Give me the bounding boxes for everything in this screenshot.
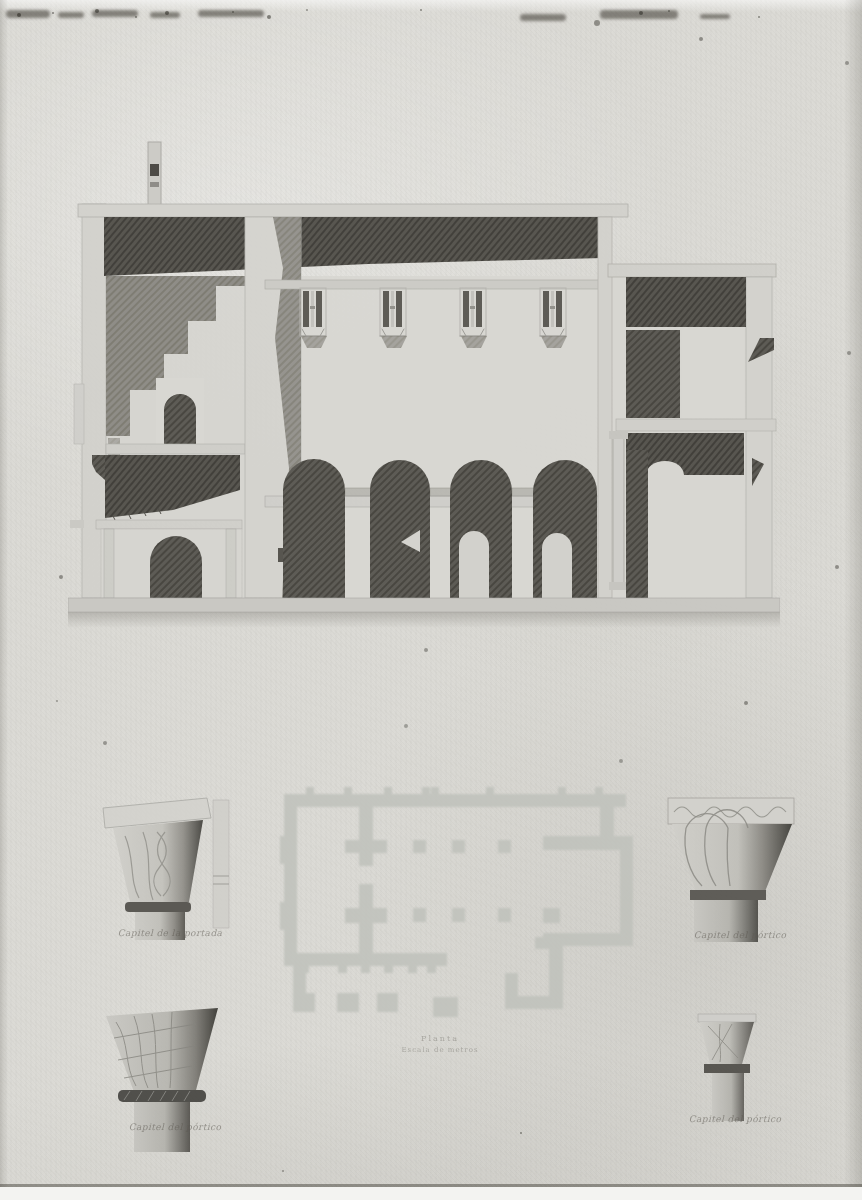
longitudinal-section-drawing [68, 138, 780, 630]
capital-figure-top-left [95, 788, 235, 940]
foxing-specks [0, 0, 2, 2]
top-smudge [198, 10, 264, 17]
engraving-plate: Capitel de la portada Capitel del pórtic… [0, 0, 862, 1200]
caption-capital-top-left: Capitel de la portada [95, 928, 245, 938]
top-smudge [6, 10, 50, 18]
top-smudge [520, 14, 566, 21]
top-smudge [58, 12, 84, 18]
plan-walls [280, 787, 633, 1017]
bottom-margin [0, 1187, 862, 1200]
plan-scale: Escala de metros [322, 1046, 558, 1054]
caption-capital-top-right: Capitel del pórtico [660, 930, 820, 940]
caption-capital-bottom-left: Capitel del pórtico [95, 1122, 255, 1132]
top-smudge [700, 14, 730, 19]
plan-caption: Planta Escala de metros [322, 1034, 558, 1054]
section-shapes [68, 142, 780, 628]
top-smudge [600, 10, 678, 19]
left-edge-shading [0, 0, 8, 1190]
caption-capital-bottom-right: Capitel del pórtico [660, 1114, 810, 1124]
capital-figure-bottom-right [688, 1008, 778, 1128]
top-smudge [150, 12, 180, 18]
top-smudge [92, 10, 138, 17]
capital-figure-top-right [662, 782, 812, 942]
floor-plan-drawing [280, 786, 638, 1026]
portal [92, 455, 242, 598]
plan-title: Planta [322, 1034, 558, 1043]
right-edge-shading [844, 0, 862, 1190]
right-porch [608, 264, 776, 598]
